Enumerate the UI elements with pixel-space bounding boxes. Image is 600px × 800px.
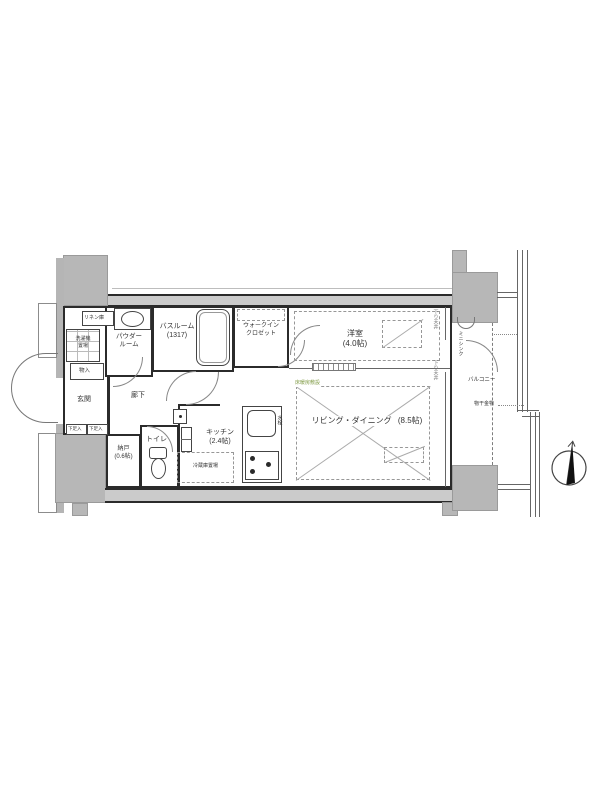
laundry-hardware-label: 物干金物 (474, 401, 494, 408)
stove-burner-3 (266, 462, 271, 467)
compass-icon (544, 432, 594, 494)
floor-heating-label: 床暖房敷設 (294, 380, 321, 387)
storage-room-label: 納戸 (0.6帖) (107, 446, 140, 462)
right-boundary-line-6 (539, 412, 540, 517)
right-boundary-line-1 (517, 250, 518, 412)
vanity-basin (121, 311, 144, 327)
right-boundary-line-5 (535, 412, 536, 517)
dropped-ceiling-label-upper: 下り天井 (432, 302, 439, 336)
upper-closet-label: 物入 (79, 368, 90, 375)
wic-shelf-dashed (237, 309, 285, 321)
window-inner-line-upper (445, 307, 446, 340)
linen-closet-label: リネン庫 (84, 315, 104, 322)
shoe-box-left-label: 下足入 (68, 426, 82, 432)
column-top-right-narrow (452, 250, 467, 273)
stove-burner-1 (250, 456, 255, 461)
column-bottom-left (55, 433, 106, 503)
balcony-door-arc (466, 340, 498, 372)
column-top-right (452, 272, 498, 323)
toilet-bowl (151, 458, 166, 479)
living-dining-label: リビング・ダイニング (8.5帖) (308, 416, 426, 426)
mini-sink-label: ミニシンク (457, 330, 464, 356)
bathtub-inner (199, 312, 227, 363)
bottom-exterior-wall-band (105, 488, 453, 503)
laundry-hardware-dotted-line (498, 405, 524, 406)
right-boundary-line-2 (522, 250, 523, 412)
kitchen-sink (247, 410, 276, 437)
column-top-left (63, 255, 108, 306)
shoe-box-right-label: 下足入 (89, 426, 103, 432)
dropped-ceiling-label-lower: 下り天井 (432, 348, 439, 392)
window-inner-line-lower (445, 372, 446, 487)
bathroom-label: バスルーム (1317) (153, 322, 201, 340)
right-tick-bottom-a (498, 484, 530, 485)
kitchen-faucet-label: 水栓 (276, 412, 283, 428)
entrance-door-arc (11, 353, 58, 423)
left-pilaster-upper (38, 303, 57, 358)
right-tick-top-a (497, 292, 517, 293)
walk-in-closet-label: ウォークイン クロゼット (235, 323, 287, 339)
entrance-label: 玄関 (77, 395, 91, 404)
divider-hatch (312, 363, 356, 371)
western-room-label: 洋室 (4.0帖) (330, 329, 380, 350)
washer-space-label: 洗濯機 置場 (69, 336, 97, 349)
kitchen-label: キッチン (2.4帖) (196, 428, 244, 446)
hall-basin-dot (179, 415, 182, 418)
pipe-space-divider (181, 439, 192, 440)
balcony-label: バルコニー (468, 377, 495, 384)
stove-burner-2 (250, 469, 255, 474)
balcony-outer-dashed-edge (492, 323, 493, 465)
balcony-dotted-divider-upper (492, 334, 517, 335)
kitchen-stove (245, 451, 279, 480)
column-bottom-right (452, 465, 498, 511)
right-tick-top-b (497, 297, 517, 298)
right-boundary-line-4 (530, 412, 531, 517)
mini-sink-basin (457, 317, 475, 329)
left-wall-foot (72, 503, 88, 516)
wall-kitchen-top (178, 404, 220, 406)
right-boundary-jog-top (517, 410, 539, 411)
top-exterior-line (112, 288, 452, 289)
right-boundary-line-3 (527, 250, 528, 412)
powder-room-label: パウダー ルーム (108, 333, 150, 350)
corridor-label: 廊下 (131, 391, 145, 400)
fridge-space-label: 冷蔵庫置場 (178, 463, 233, 470)
right-tick-bottom-b (498, 489, 530, 490)
floor-plan: ミニシンク バルコニー 物干金物 洗濯機 置場 リネン庫 物入 玄関 下足入 下… (0, 0, 600, 800)
